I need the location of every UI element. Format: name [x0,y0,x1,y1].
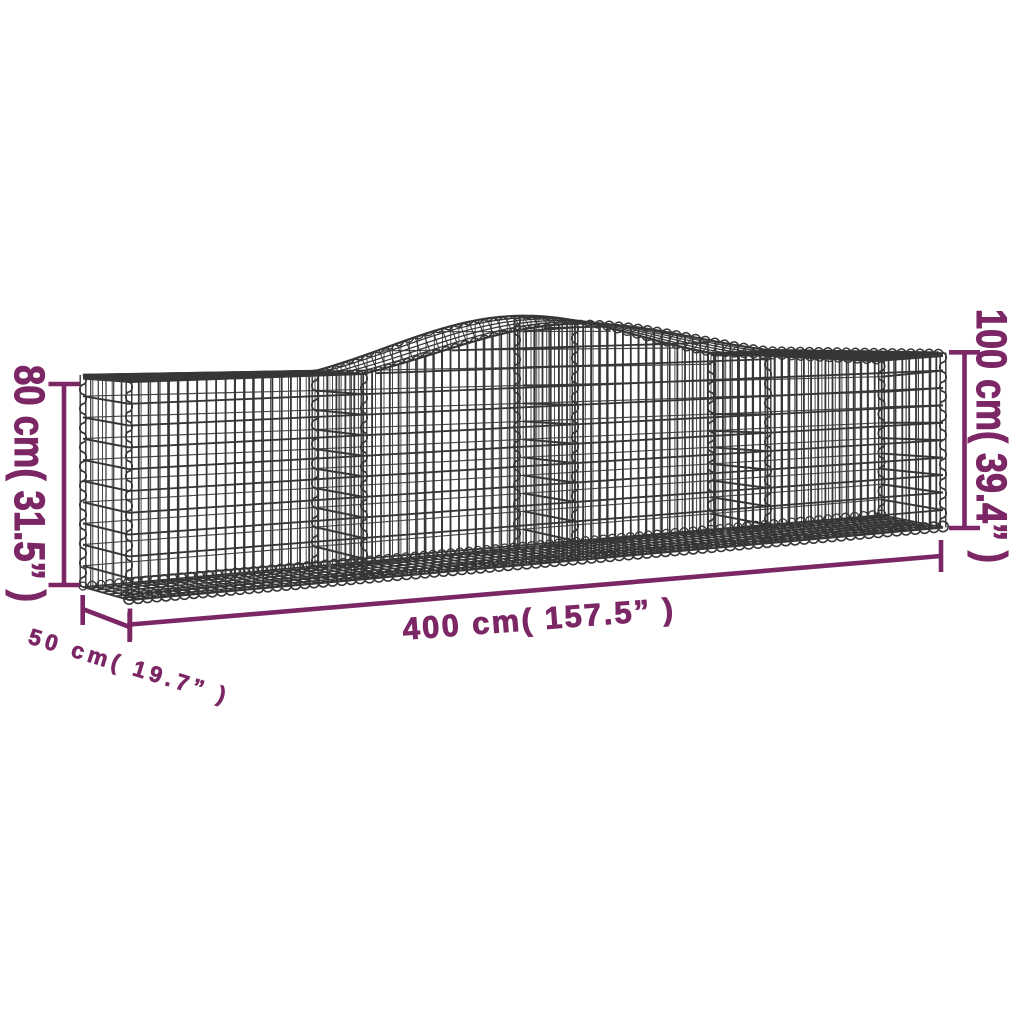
svg-text:100 cm( 39.4” ): 100 cm( 39.4” ) [967,309,1015,563]
svg-text:80 cm( 31.5” ): 80 cm( 31.5” ) [5,365,53,602]
